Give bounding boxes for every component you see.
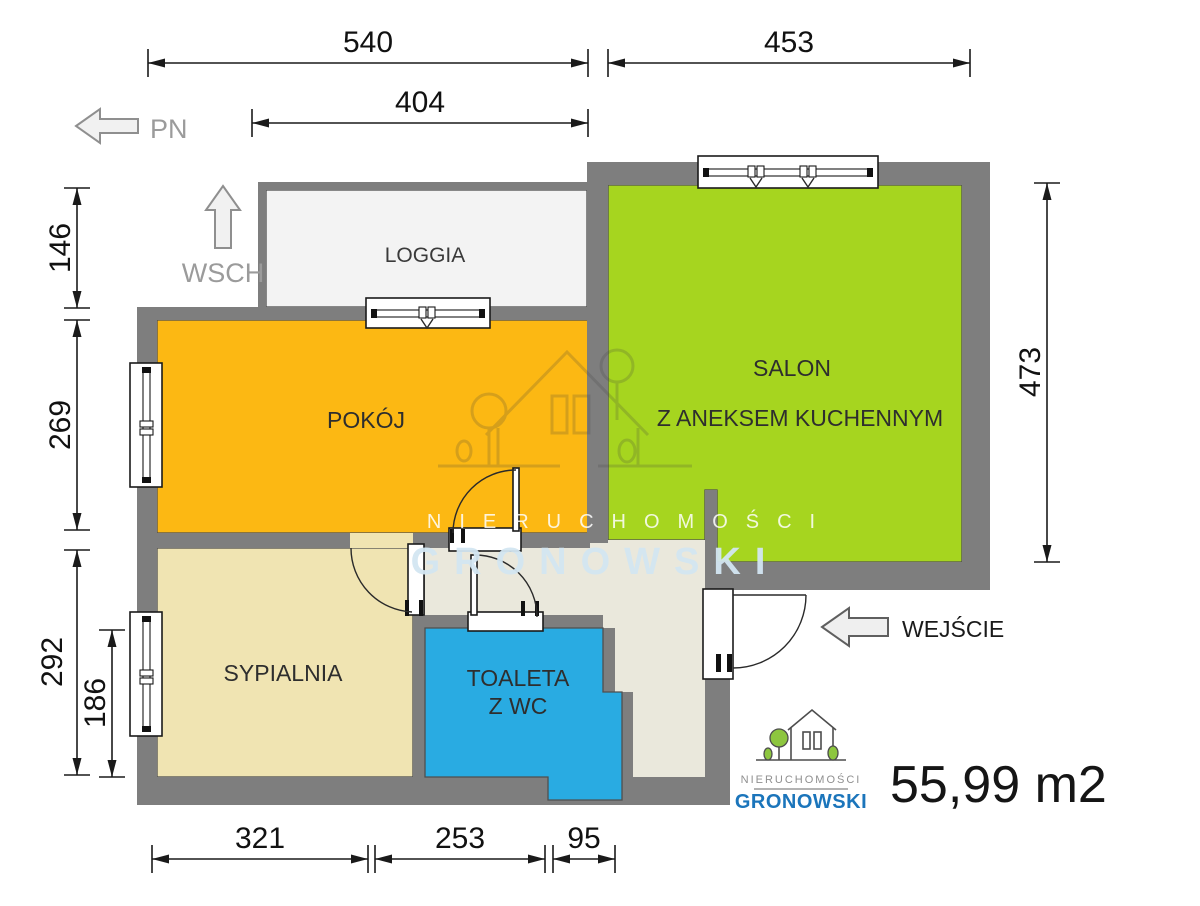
window-pokoj-west bbox=[130, 363, 162, 487]
room-label-toaleta-line1: TOALETA bbox=[467, 665, 570, 691]
dimension-top-404: 404 bbox=[252, 86, 588, 137]
wall-toaleta-east-upper bbox=[603, 628, 615, 692]
room-label-salon-line1: SALON bbox=[753, 355, 831, 381]
logo-house-icon bbox=[756, 710, 846, 760]
floor-plan-page: NIERUCHOMOŚCI GRONOWSKI 540 453 404 bbox=[0, 0, 1200, 906]
dim-label-186: 186 bbox=[79, 678, 112, 728]
room-label-salon-line2: Z ANEKSEM KUCHENNYM bbox=[657, 405, 943, 431]
logo-brand-top: NIERUCHOMOŚCI bbox=[741, 773, 862, 786]
watermark-brand-top: NIERUCHOMOŚCI bbox=[427, 509, 833, 533]
brand-logo: NIERUCHOMOŚCI GRONOWSKI bbox=[735, 710, 867, 813]
east-arrow-icon bbox=[206, 186, 240, 248]
dim-label-269: 269 bbox=[44, 400, 77, 450]
logo-brand-main: GRONOWSKI bbox=[735, 791, 867, 813]
dimension-bottom-321: 321 bbox=[152, 822, 368, 873]
room-label-sypialnia: SYPIALNIA bbox=[224, 660, 344, 686]
compass: PN WSCH bbox=[76, 109, 264, 288]
watermark-brand-main: GRONOWSKI bbox=[411, 541, 780, 583]
dim-label-540: 540 bbox=[343, 26, 393, 59]
wall-loggia-west bbox=[258, 182, 266, 307]
dim-label-253: 253 bbox=[435, 822, 485, 855]
dimension-left-186: 186 bbox=[79, 630, 125, 777]
dimension-top-540: 540 bbox=[148, 26, 588, 77]
entrance-label: WEJŚCIE bbox=[902, 615, 1004, 642]
dimension-bottom-253: 253 bbox=[375, 822, 545, 873]
dim-label-321: 321 bbox=[235, 822, 285, 855]
door-entrance bbox=[703, 589, 806, 679]
dim-label-404: 404 bbox=[395, 86, 445, 119]
dim-label-453: 453 bbox=[764, 26, 814, 59]
room-label-pokoj: POKÓJ bbox=[327, 407, 405, 433]
dimension-top-453: 453 bbox=[608, 26, 970, 77]
wall-salon-east bbox=[962, 162, 990, 590]
window-sypialnia-west bbox=[130, 612, 162, 736]
dimension-right-473: 473 bbox=[1014, 183, 1060, 562]
entrance-arrow-icon bbox=[822, 608, 888, 646]
wall-south bbox=[137, 777, 730, 805]
wall-loggia-north bbox=[258, 182, 598, 190]
room-label-toaleta-line2: Z WC bbox=[489, 693, 548, 719]
dimension-bottom-95: 95 bbox=[553, 822, 615, 873]
window-salon-north bbox=[698, 156, 878, 188]
dim-label-146: 146 bbox=[44, 223, 77, 273]
north-arrow-icon bbox=[76, 109, 138, 143]
room-label-loggia: LOGGIA bbox=[385, 244, 466, 267]
dimension-left-146: 146 bbox=[44, 188, 90, 308]
dim-label-292: 292 bbox=[36, 637, 69, 687]
dim-label-95: 95 bbox=[567, 822, 600, 855]
floor-plan: NIERUCHOMOŚCI GRONOWSKI 540 453 404 bbox=[0, 0, 1200, 906]
area-label: 55,99 m2 bbox=[890, 756, 1107, 814]
dimension-left-269: 269 bbox=[44, 320, 90, 530]
compass-east-label: WSCH bbox=[182, 258, 265, 288]
wall-toaleta-east-lower bbox=[622, 713, 633, 805]
entrance-annotation: WEJŚCIE bbox=[822, 608, 1004, 646]
window-pokoj-loggia bbox=[366, 298, 490, 328]
wall-pokoj-salon bbox=[587, 162, 608, 543]
dim-label-473: 473 bbox=[1014, 347, 1047, 397]
dimension-left-292: 292 bbox=[36, 550, 90, 775]
compass-north-label: PN bbox=[150, 114, 188, 144]
